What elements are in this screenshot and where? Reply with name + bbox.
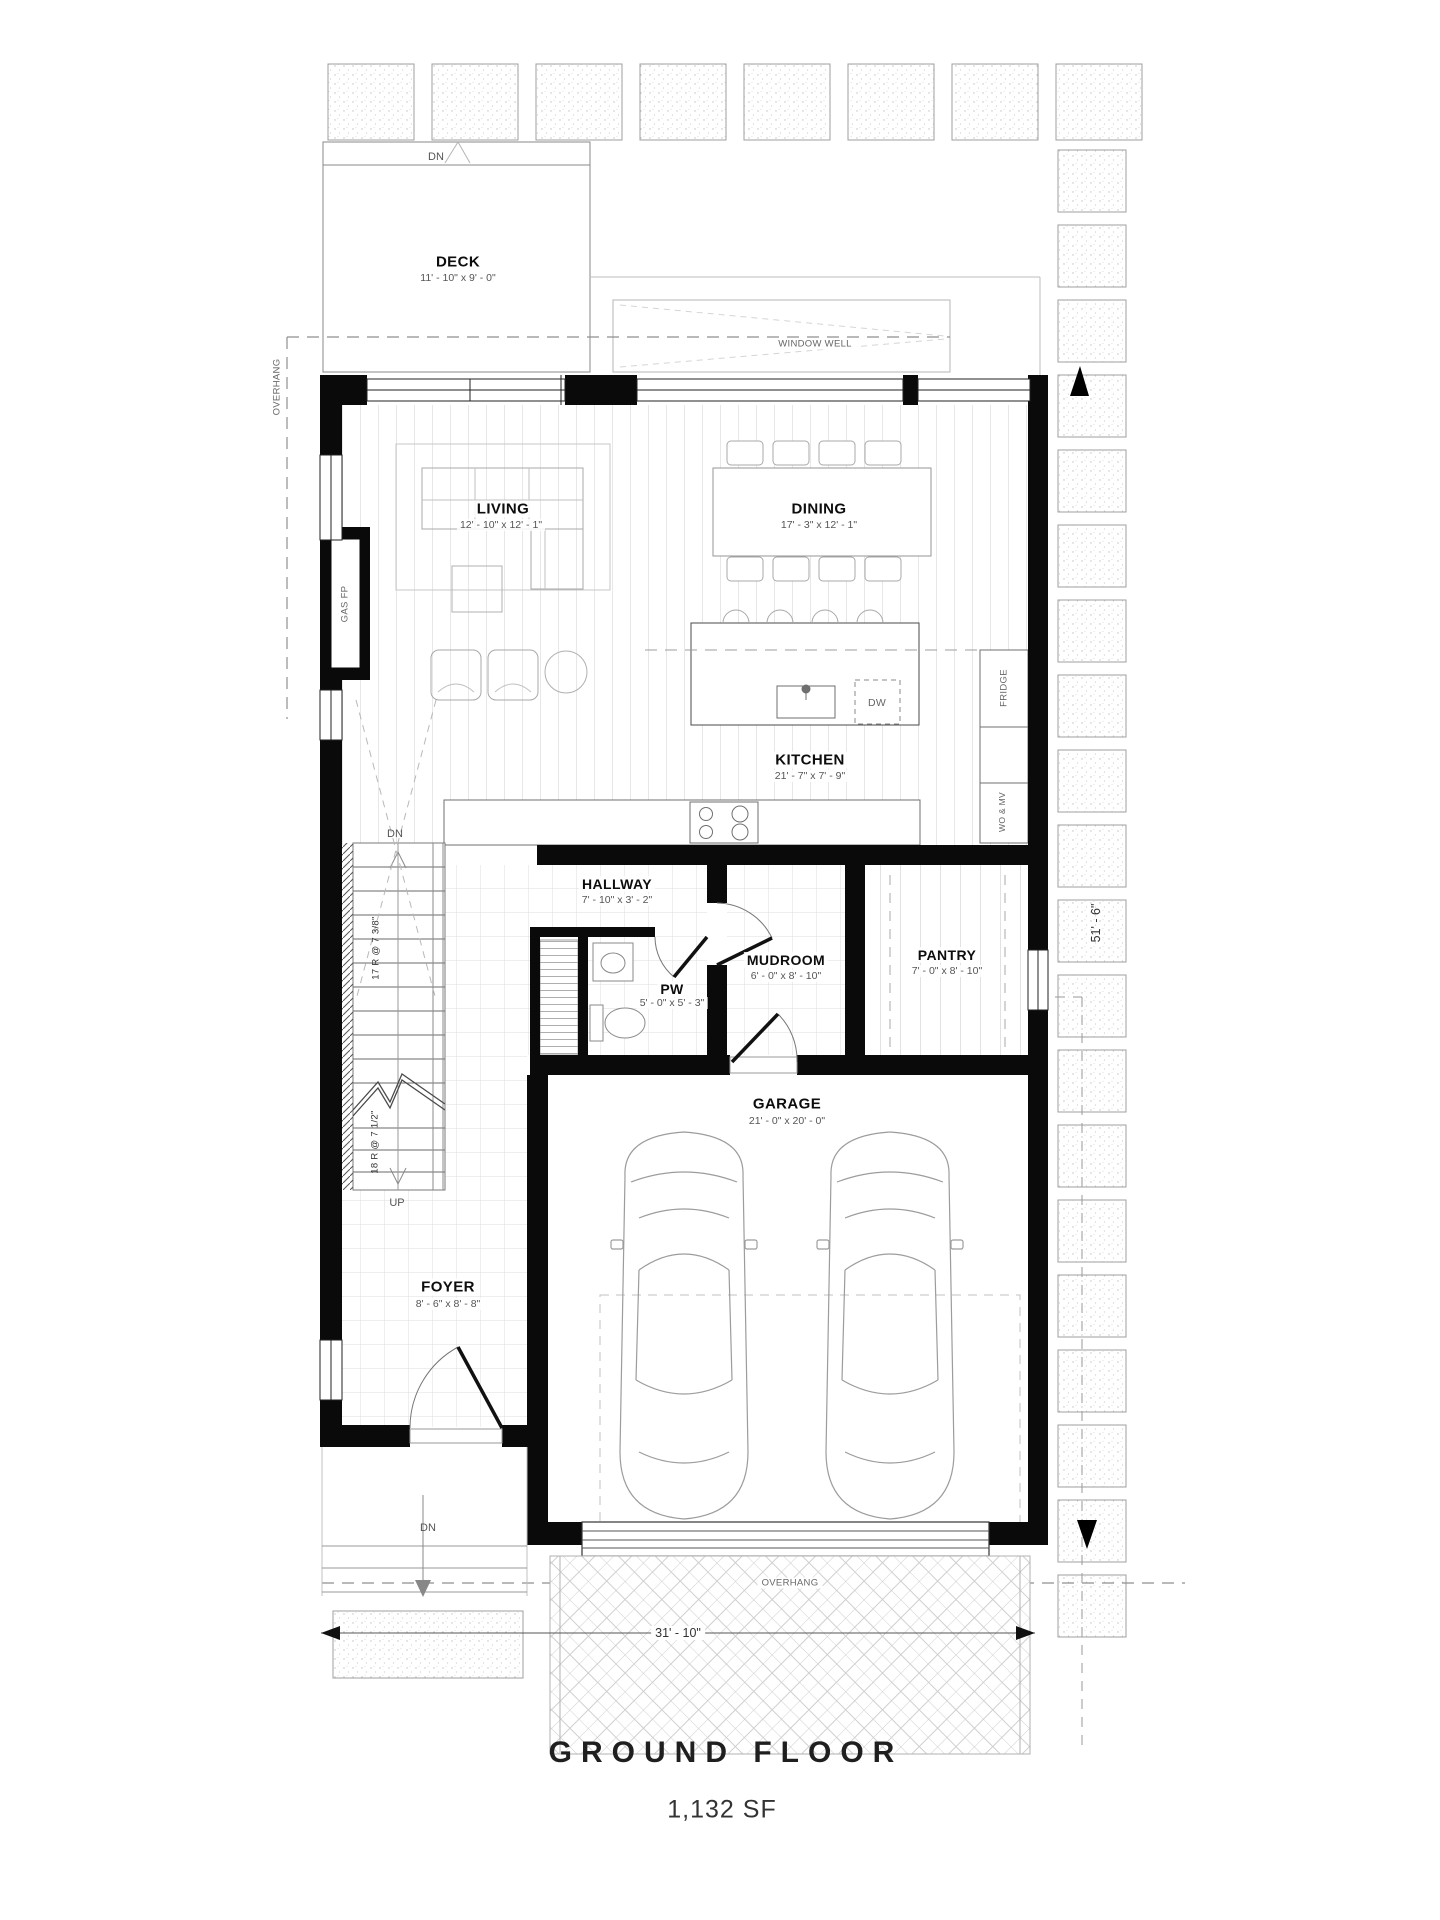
window-well <box>613 300 950 372</box>
parking-stall-dashed <box>600 1295 1020 1540</box>
room-name-living: LIVING <box>474 501 532 518</box>
room-name-deck: DECK <box>433 254 483 271</box>
fridge-label: FRIDGE <box>999 669 1010 707</box>
deck-dn-label: DN <box>428 151 444 163</box>
overall-width-dimension: 31' - 10" <box>651 1626 705 1640</box>
room-name-hallway: HALLWAY <box>579 876 655 892</box>
hall-closet-shelves <box>540 940 578 1055</box>
stairs-dn-label: DN <box>387 828 403 840</box>
room-dims-hallway: 7' - 10" x 3' - 2" <box>579 894 655 906</box>
overhang-left-label: OVERHANG <box>272 359 283 416</box>
floor-area: 1,132 SF <box>667 1796 776 1825</box>
overall-depth-dimension: 51' - 6" <box>1089 904 1103 943</box>
page-title: GROUND FLOOR <box>549 1736 904 1770</box>
room-dims-foyer: 8' - 6" x 8' - 8" <box>413 1298 484 1310</box>
room-name-garage: GARAGE <box>750 1096 824 1113</box>
room-name-dining: DINING <box>789 501 850 518</box>
porch-dn-label: DN <box>420 1522 436 1534</box>
gas-fireplace-label: GAS FP <box>340 586 351 623</box>
room-name-mudroom: MUDROOM <box>744 952 828 968</box>
room-dims-garage: 21' - 0" x 20' - 0" <box>746 1115 828 1127</box>
garage-door <box>582 1522 989 1556</box>
window-well-label: WINDOW WELL <box>774 339 856 350</box>
room-dims-pantry: 7' - 0" x 8' - 10" <box>909 965 985 977</box>
room-name-foyer: FOYER <box>418 1279 478 1296</box>
room-dims-deck: 11' - 10" x 9' - 0" <box>417 272 498 284</box>
room-dims-mudroom: 6' - 0" x 8' - 10" <box>748 970 824 982</box>
stairs-lower-riser-note: 18 R @ 7 1/2" <box>370 1110 381 1173</box>
room-dims-living: 12' - 10" x 12' - 1" <box>457 519 545 531</box>
basement-areaway-line <box>590 277 1040 375</box>
stairs-upper-riser-note: 17 R @ 7 3/8" <box>371 916 382 979</box>
wall-oven-microwave-label: WO & MV <box>997 792 1007 832</box>
stairs-up-label: UP <box>389 1197 404 1209</box>
floor-plan-drawing <box>0 0 1440 1920</box>
room-dims-kitchen: 21' - 7" x 7' - 9" <box>772 770 848 782</box>
dishwasher-label: DW <box>868 697 886 709</box>
room-name-pantry: PANTRY <box>915 947 979 963</box>
room-dims-dining: 17' - 3" x 12' - 1" <box>778 519 860 531</box>
room-name-pw: PW <box>657 981 686 997</box>
room-name-kitchen: KITCHEN <box>772 752 847 769</box>
floor-plan-page: DN DECK 11' - 10" x 9' - 0" WINDOW WELL … <box>0 0 1440 1920</box>
room-dims-pw: 5' - 0" x 5' - 3" <box>637 997 708 1009</box>
overhang-bottom-label: OVERHANG <box>758 1578 823 1589</box>
